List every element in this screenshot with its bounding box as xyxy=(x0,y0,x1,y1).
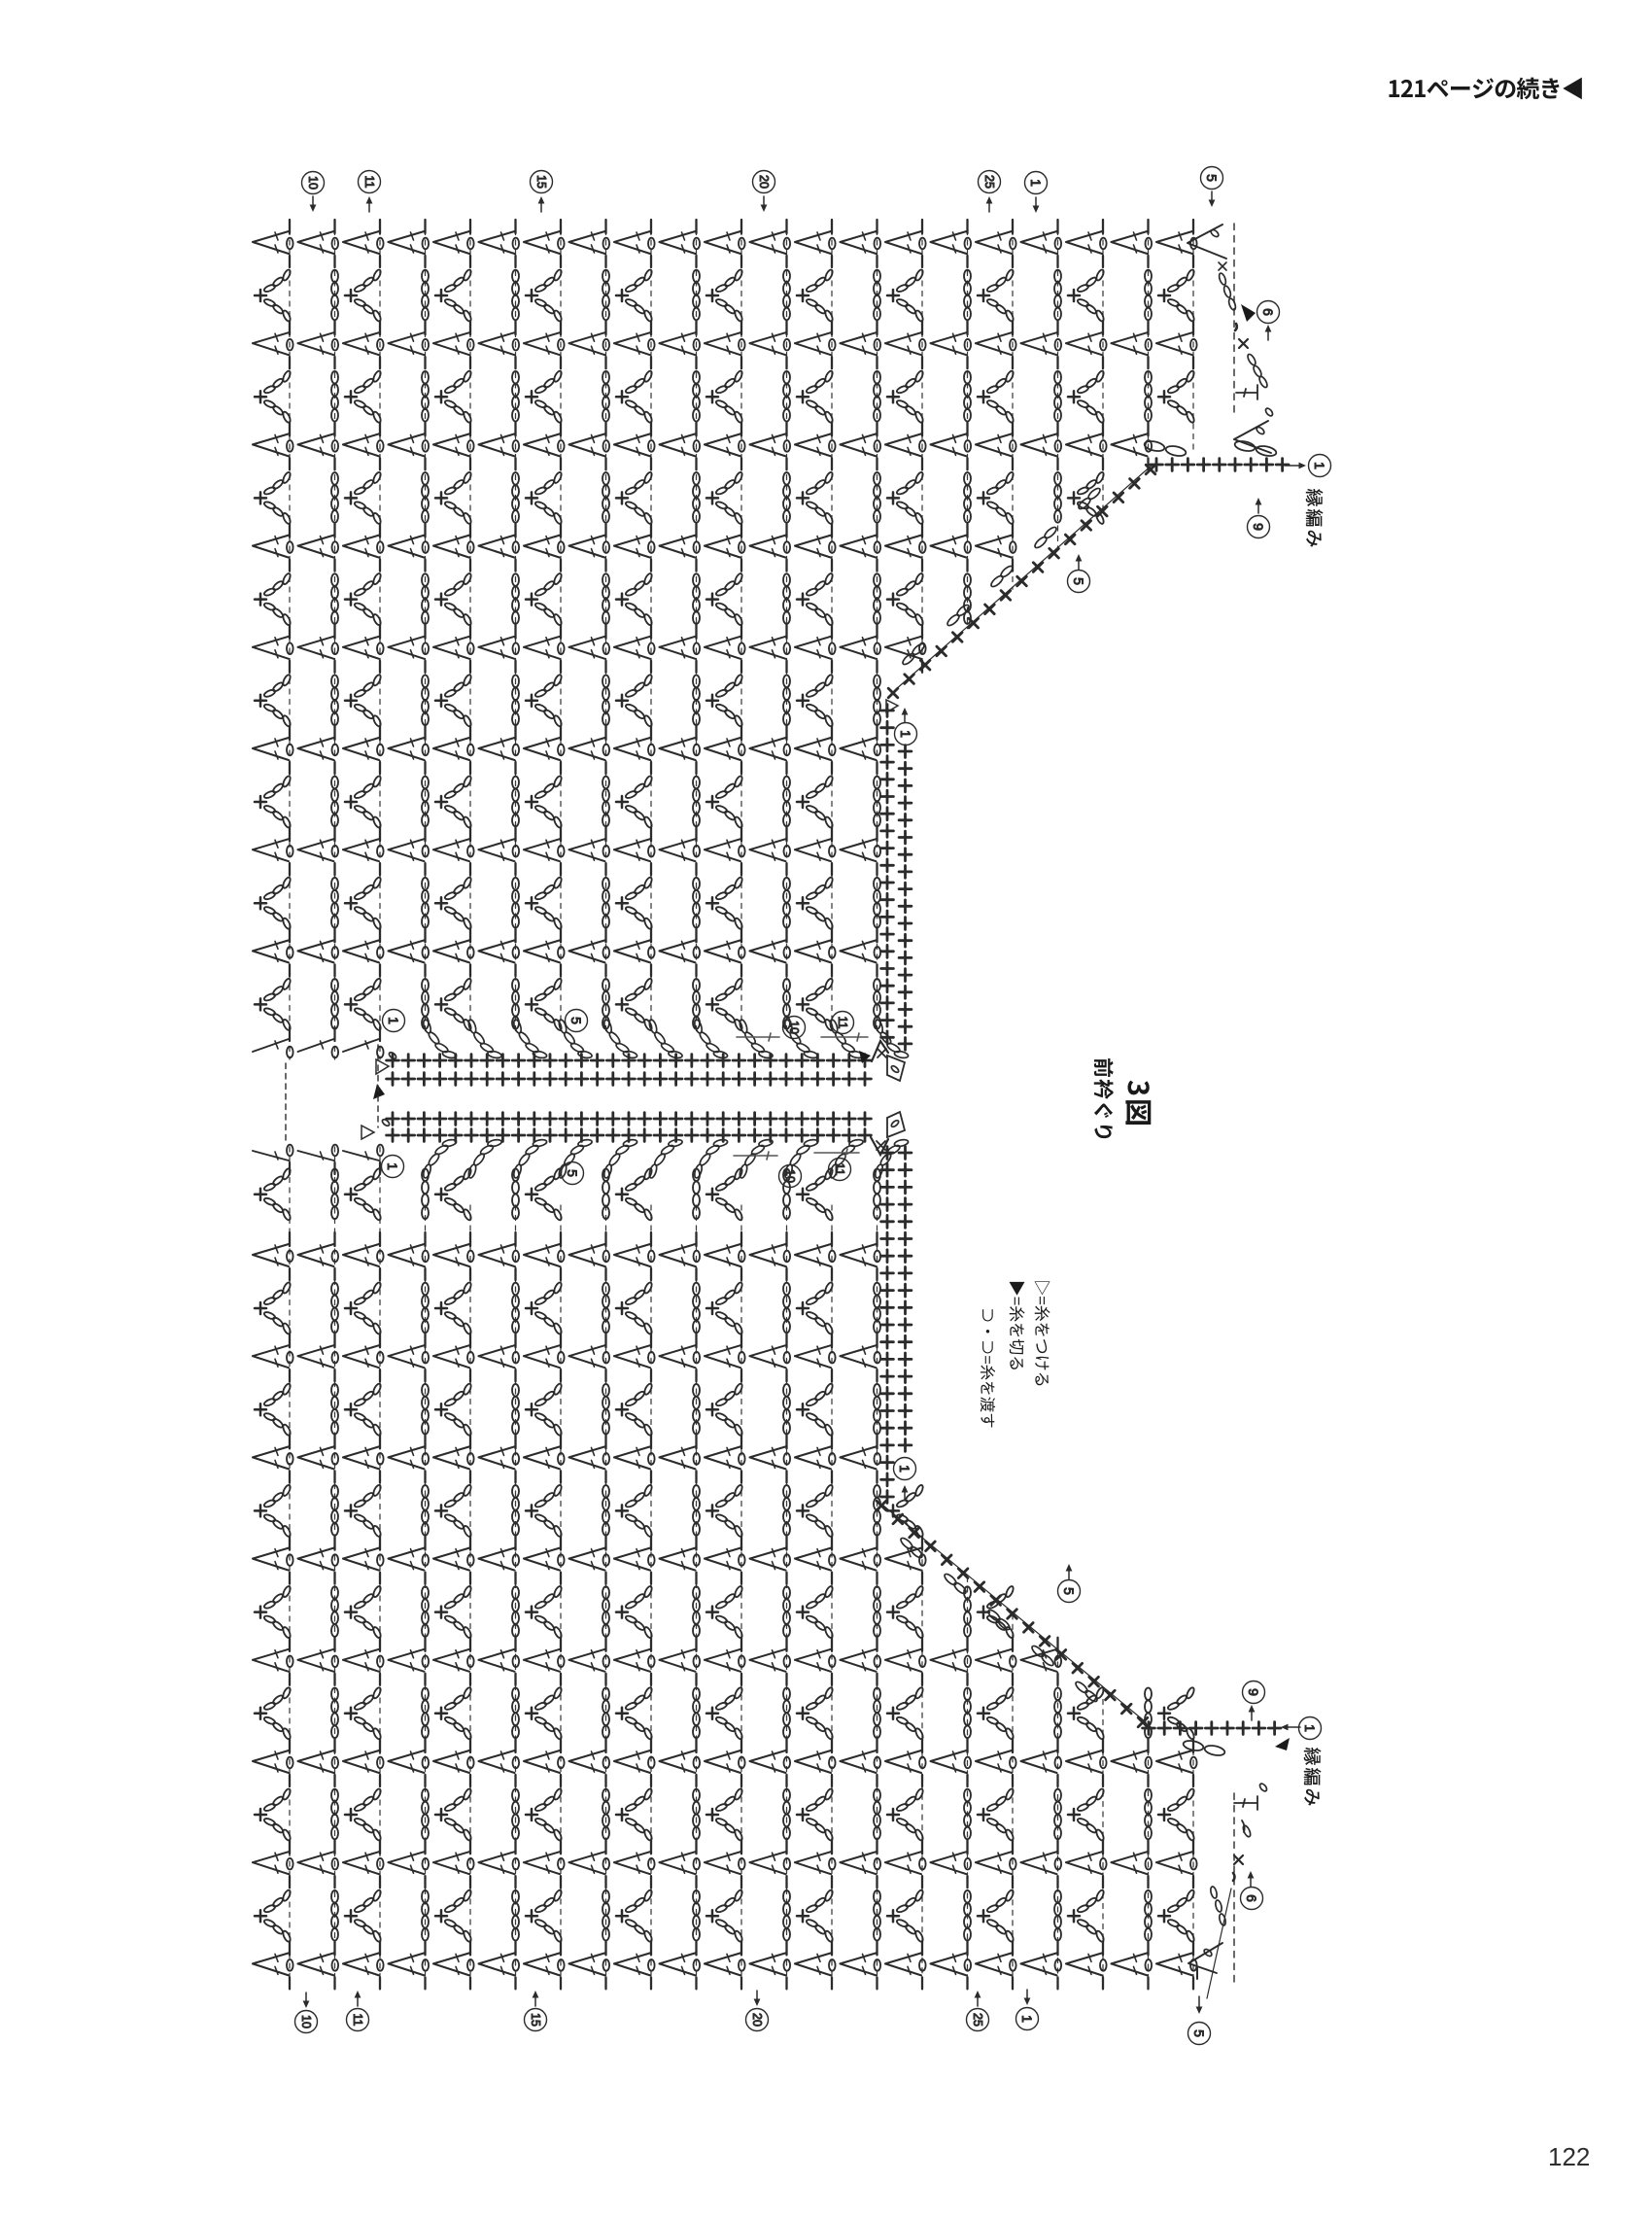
svg-text:10: 10 xyxy=(787,1021,801,1034)
svg-text:10: 10 xyxy=(306,176,320,190)
svg-text:5: 5 xyxy=(1071,577,1086,585)
svg-text:11: 11 xyxy=(362,176,376,189)
svg-text:9: 9 xyxy=(1251,523,1266,531)
svg-text:15: 15 xyxy=(529,2013,542,2027)
svg-text:11: 11 xyxy=(351,2014,364,2027)
svg-text:6: 6 xyxy=(1244,1894,1259,1902)
svg-text:5: 5 xyxy=(1191,2029,1207,2037)
svg-text:25: 25 xyxy=(982,175,996,189)
svg-text:5: 5 xyxy=(568,1017,584,1024)
svg-text:1: 1 xyxy=(386,1017,401,1024)
svg-text:1: 1 xyxy=(898,730,913,738)
svg-text:1: 1 xyxy=(1028,179,1044,187)
svg-text:9: 9 xyxy=(1246,1688,1261,1696)
svg-text:10: 10 xyxy=(783,1169,797,1183)
svg-text:11: 11 xyxy=(836,1017,849,1029)
svg-text:1: 1 xyxy=(385,1162,400,1170)
svg-text:15: 15 xyxy=(534,175,548,189)
svg-text:10: 10 xyxy=(299,2015,313,2028)
svg-text:1: 1 xyxy=(1302,1724,1318,1732)
svg-text:1: 1 xyxy=(897,1465,912,1473)
svg-text:5: 5 xyxy=(565,1169,580,1177)
svg-text:122: 122 xyxy=(1548,2142,1590,2171)
svg-text:5: 5 xyxy=(1061,1587,1077,1595)
svg-text:11: 11 xyxy=(833,1163,846,1176)
svg-text:1: 1 xyxy=(1312,462,1327,469)
svg-text:1: 1 xyxy=(1019,2015,1035,2023)
svg-text:20: 20 xyxy=(750,2013,764,2027)
svg-text:6: 6 xyxy=(1260,308,1276,316)
svg-text:5: 5 xyxy=(1204,174,1220,182)
svg-text:20: 20 xyxy=(757,175,771,189)
svg-text:25: 25 xyxy=(971,2013,984,2027)
